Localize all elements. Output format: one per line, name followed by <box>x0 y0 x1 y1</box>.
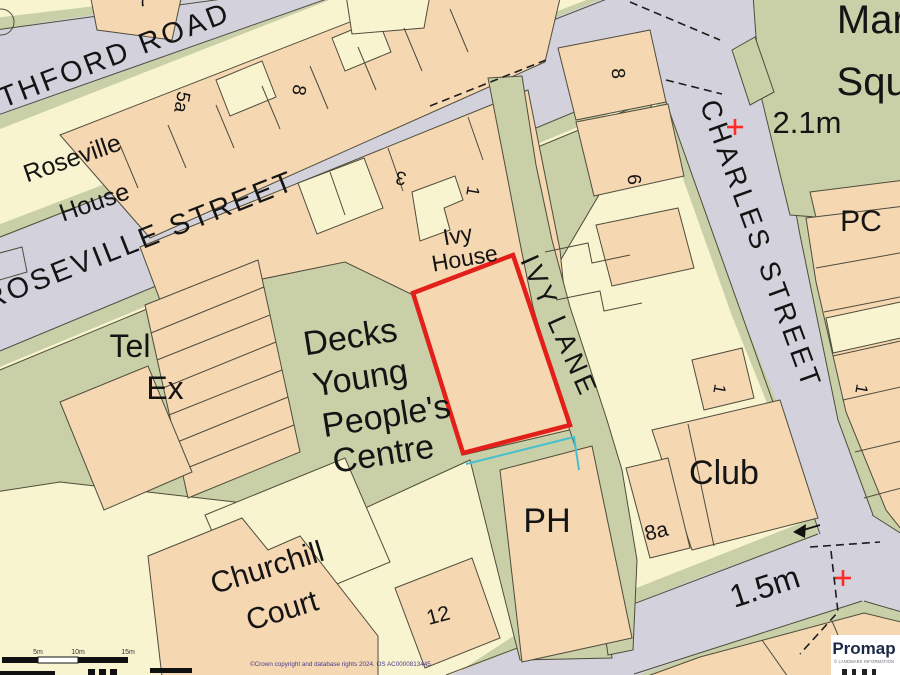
scale-tick-15m: 15m <box>121 649 135 656</box>
label-tel: Tel <box>110 328 151 364</box>
scale-tick-10m: 10m <box>71 649 85 656</box>
promap-subtitle-text: © LANDMARK INFORMATION <box>834 659 894 664</box>
label-square: Square <box>837 60 900 104</box>
os-copyright-text: ©Crown copyright and database rights 202… <box>250 660 431 668</box>
scale-tick-5m: 5m <box>33 649 43 656</box>
label-pc: PC <box>840 205 882 238</box>
number-8-charles: 8 <box>607 67 629 79</box>
spot-height-2-1m: 2.1m <box>773 105 842 140</box>
label-ex: Ex <box>146 370 183 406</box>
map-canvas[interactable]: THFORD ROAD ROSEVILLE STREET CHARLES STR… <box>0 0 900 675</box>
label-market: Market <box>837 0 900 42</box>
building-1-block <box>692 348 754 410</box>
number-6-charles: 6 <box>623 173 645 185</box>
promap-brand-text: Promap <box>832 639 895 658</box>
promap-logo: Promap © LANDMARK INFORMATION <box>831 635 900 675</box>
label-ph: PH <box>523 502 570 540</box>
label-club: Club <box>689 454 759 492</box>
number-5a: 5a <box>169 90 193 115</box>
